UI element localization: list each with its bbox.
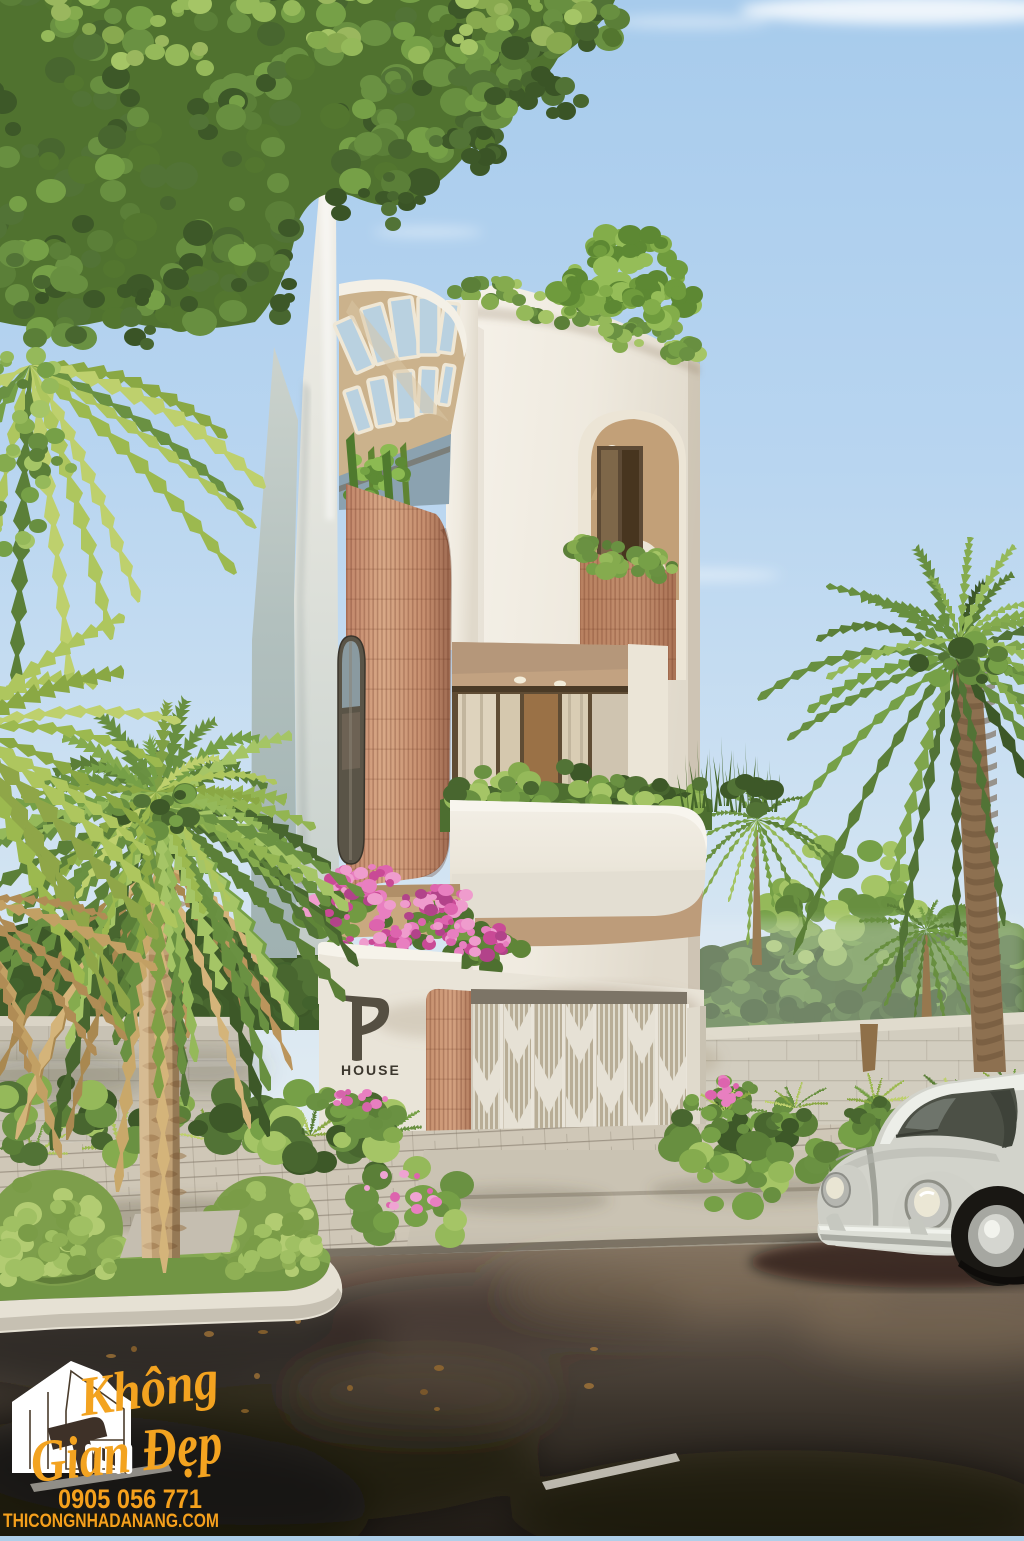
svg-text:THICONGNHADANANG.COM: THICONGNHADANANG.COM bbox=[3, 1511, 219, 1532]
svg-text:HOUSE: HOUSE bbox=[341, 1062, 401, 1078]
svg-text:0905 056 771: 0905 056 771 bbox=[58, 1484, 202, 1514]
